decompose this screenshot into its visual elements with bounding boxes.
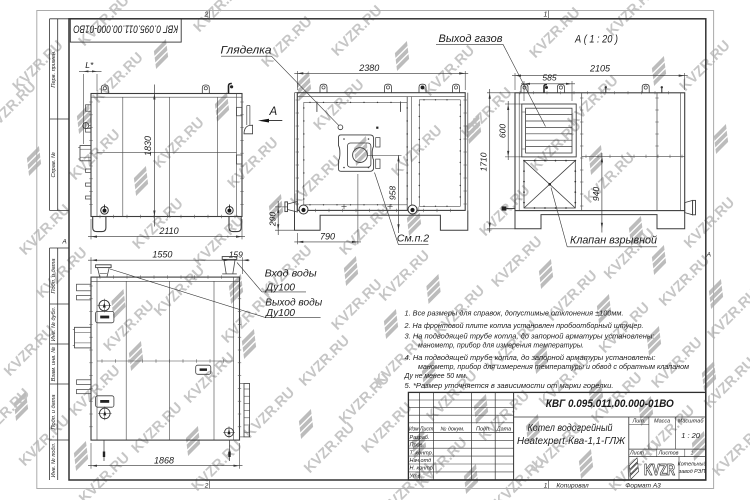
svg-text:Инв. № подл.: Инв. № подл. <box>51 443 57 478</box>
svg-text:L*: L* <box>85 60 94 70</box>
svg-text:А: А <box>706 252 711 259</box>
svg-text:А: А <box>61 239 66 246</box>
svg-text:Утв.: Утв. <box>409 474 423 480</box>
svg-text:Клапан взрывной: Клапан взрывной <box>570 235 657 247</box>
svg-text:1. Все размеры для справок, до: 1. Все размеры для справок, допустимые о… <box>405 310 624 318</box>
svg-text:Копировал: Копировал <box>556 483 589 490</box>
svg-text:Котел водогрейный: Котел водогрейный <box>528 423 613 434</box>
svg-text:2110: 2110 <box>158 226 178 236</box>
svg-text:3. На подводящей трубе котла,: 3. На подводящей трубе котла, до запорно… <box>405 333 655 341</box>
svg-text:Ду100: Ду100 <box>265 281 295 293</box>
svg-text:Пров.: Пров. <box>410 443 425 449</box>
svg-text:1: 1 <box>544 483 548 490</box>
svg-text:290: 290 <box>267 212 277 227</box>
svg-text:Разраб.: Разраб. <box>410 435 430 441</box>
svg-text:1550: 1550 <box>152 250 172 260</box>
svg-text:Подп.: Подп. <box>476 427 491 433</box>
svg-text:№ докум.: № докум. <box>440 427 464 433</box>
svg-text:КВГ 0.095.011.00.000-01ВО: КВГ 0.095.011.00.000-01ВО <box>73 23 178 35</box>
svg-text:Ду100: Ду100 <box>265 307 295 319</box>
svg-text:Н. контр.: Н. контр. <box>410 466 435 472</box>
svg-text:А ( 1 : 20 ): А ( 1 : 20 ) <box>574 34 618 46</box>
svg-text:Вход воды: Вход воды <box>265 267 317 279</box>
svg-text:Лист: Лист <box>419 426 434 432</box>
svg-text:2105: 2105 <box>589 63 611 73</box>
svg-text:манометр, прибор для измерения: манометр, прибор для измерения температу… <box>418 363 689 371</box>
svg-text:Нач.отд: Нач.отд <box>410 458 432 464</box>
svg-text:1710: 1710 <box>479 152 489 171</box>
svg-text:2: 2 <box>204 483 209 490</box>
svg-text:Лит.: Лит. <box>631 419 645 425</box>
svg-text:600: 600 <box>497 124 507 138</box>
svg-text:См.п.2: См.п.2 <box>397 233 429 245</box>
svg-text:Взам. инв. №: Взам. инв. № <box>51 347 57 382</box>
svg-text:Подп. и дата: Подп. и дата <box>51 258 57 293</box>
svg-text:790: 790 <box>320 232 335 242</box>
svg-text:KVZR: KVZR <box>644 462 675 479</box>
svg-text:Справ. №: Справ. № <box>51 152 57 177</box>
svg-text:1 : 20: 1 : 20 <box>681 431 701 440</box>
svg-text:А: А <box>268 106 277 118</box>
svg-text:1830: 1830 <box>143 136 153 156</box>
svg-text:Котельный: Котельный <box>678 461 707 468</box>
svg-text:Heatexpert-Ква-1,1-ГЛЖ: Heatexpert-Ква-1,1-ГЛЖ <box>517 436 626 447</box>
svg-text:Т. контр.: Т. контр. <box>410 450 434 456</box>
svg-text:159: 159 <box>229 250 243 260</box>
svg-text:Изм: Изм <box>409 426 419 432</box>
svg-text:2: 2 <box>204 11 209 18</box>
svg-text:5. *Размер уточняется в зависи: 5. *Размер уточняется в зависимости от м… <box>405 383 614 390</box>
svg-text:958: 958 <box>387 186 397 200</box>
svg-text:4. На подводящей трубе котла,: 4. На подводящей трубе котла, до запорно… <box>405 354 656 362</box>
svg-text:Дата: Дата <box>496 427 512 433</box>
svg-text:Листов: Листов <box>657 451 678 457</box>
svg-text:1868: 1868 <box>154 455 174 465</box>
svg-text:2380: 2380 <box>358 63 379 73</box>
svg-text:585: 585 <box>542 72 556 82</box>
svg-text:2. На фронтовой плите котла ус: 2. На фронтовой плите котла установлен п… <box>403 322 643 330</box>
svg-text:Гляделка: Гляделка <box>221 45 272 57</box>
svg-text:Перв. примен.: Перв. примен. <box>51 50 57 87</box>
svg-text:Масштаб: Масштаб <box>678 419 705 425</box>
svg-text:манометр, прибор для измерения: манометр, прибор для измерения температу… <box>418 342 584 350</box>
svg-text:КВГ 0.095.011.00.000-01ВО: КВГ 0.095.011.00.000-01ВО <box>546 398 675 410</box>
svg-text:1: 1 <box>690 451 693 457</box>
svg-text:1: 1 <box>544 11 548 18</box>
svg-text:Формат А3: Формат А3 <box>625 483 661 490</box>
svg-text:Инв. № дубл.: Инв. № дубл. <box>51 307 57 341</box>
svg-text:940: 940 <box>591 187 601 201</box>
svg-text:Масса: Масса <box>654 419 670 425</box>
svg-text:завод РЭП: завод РЭП <box>678 469 706 475</box>
svg-text:Ду не менее 50 мм.: Ду не менее 50 мм. <box>404 373 468 380</box>
svg-text:Лист: Лист <box>629 451 645 457</box>
svg-text:Выход газов: Выход газов <box>439 33 503 45</box>
svg-text:Подп. и дата: Подп. и дата <box>51 394 57 429</box>
